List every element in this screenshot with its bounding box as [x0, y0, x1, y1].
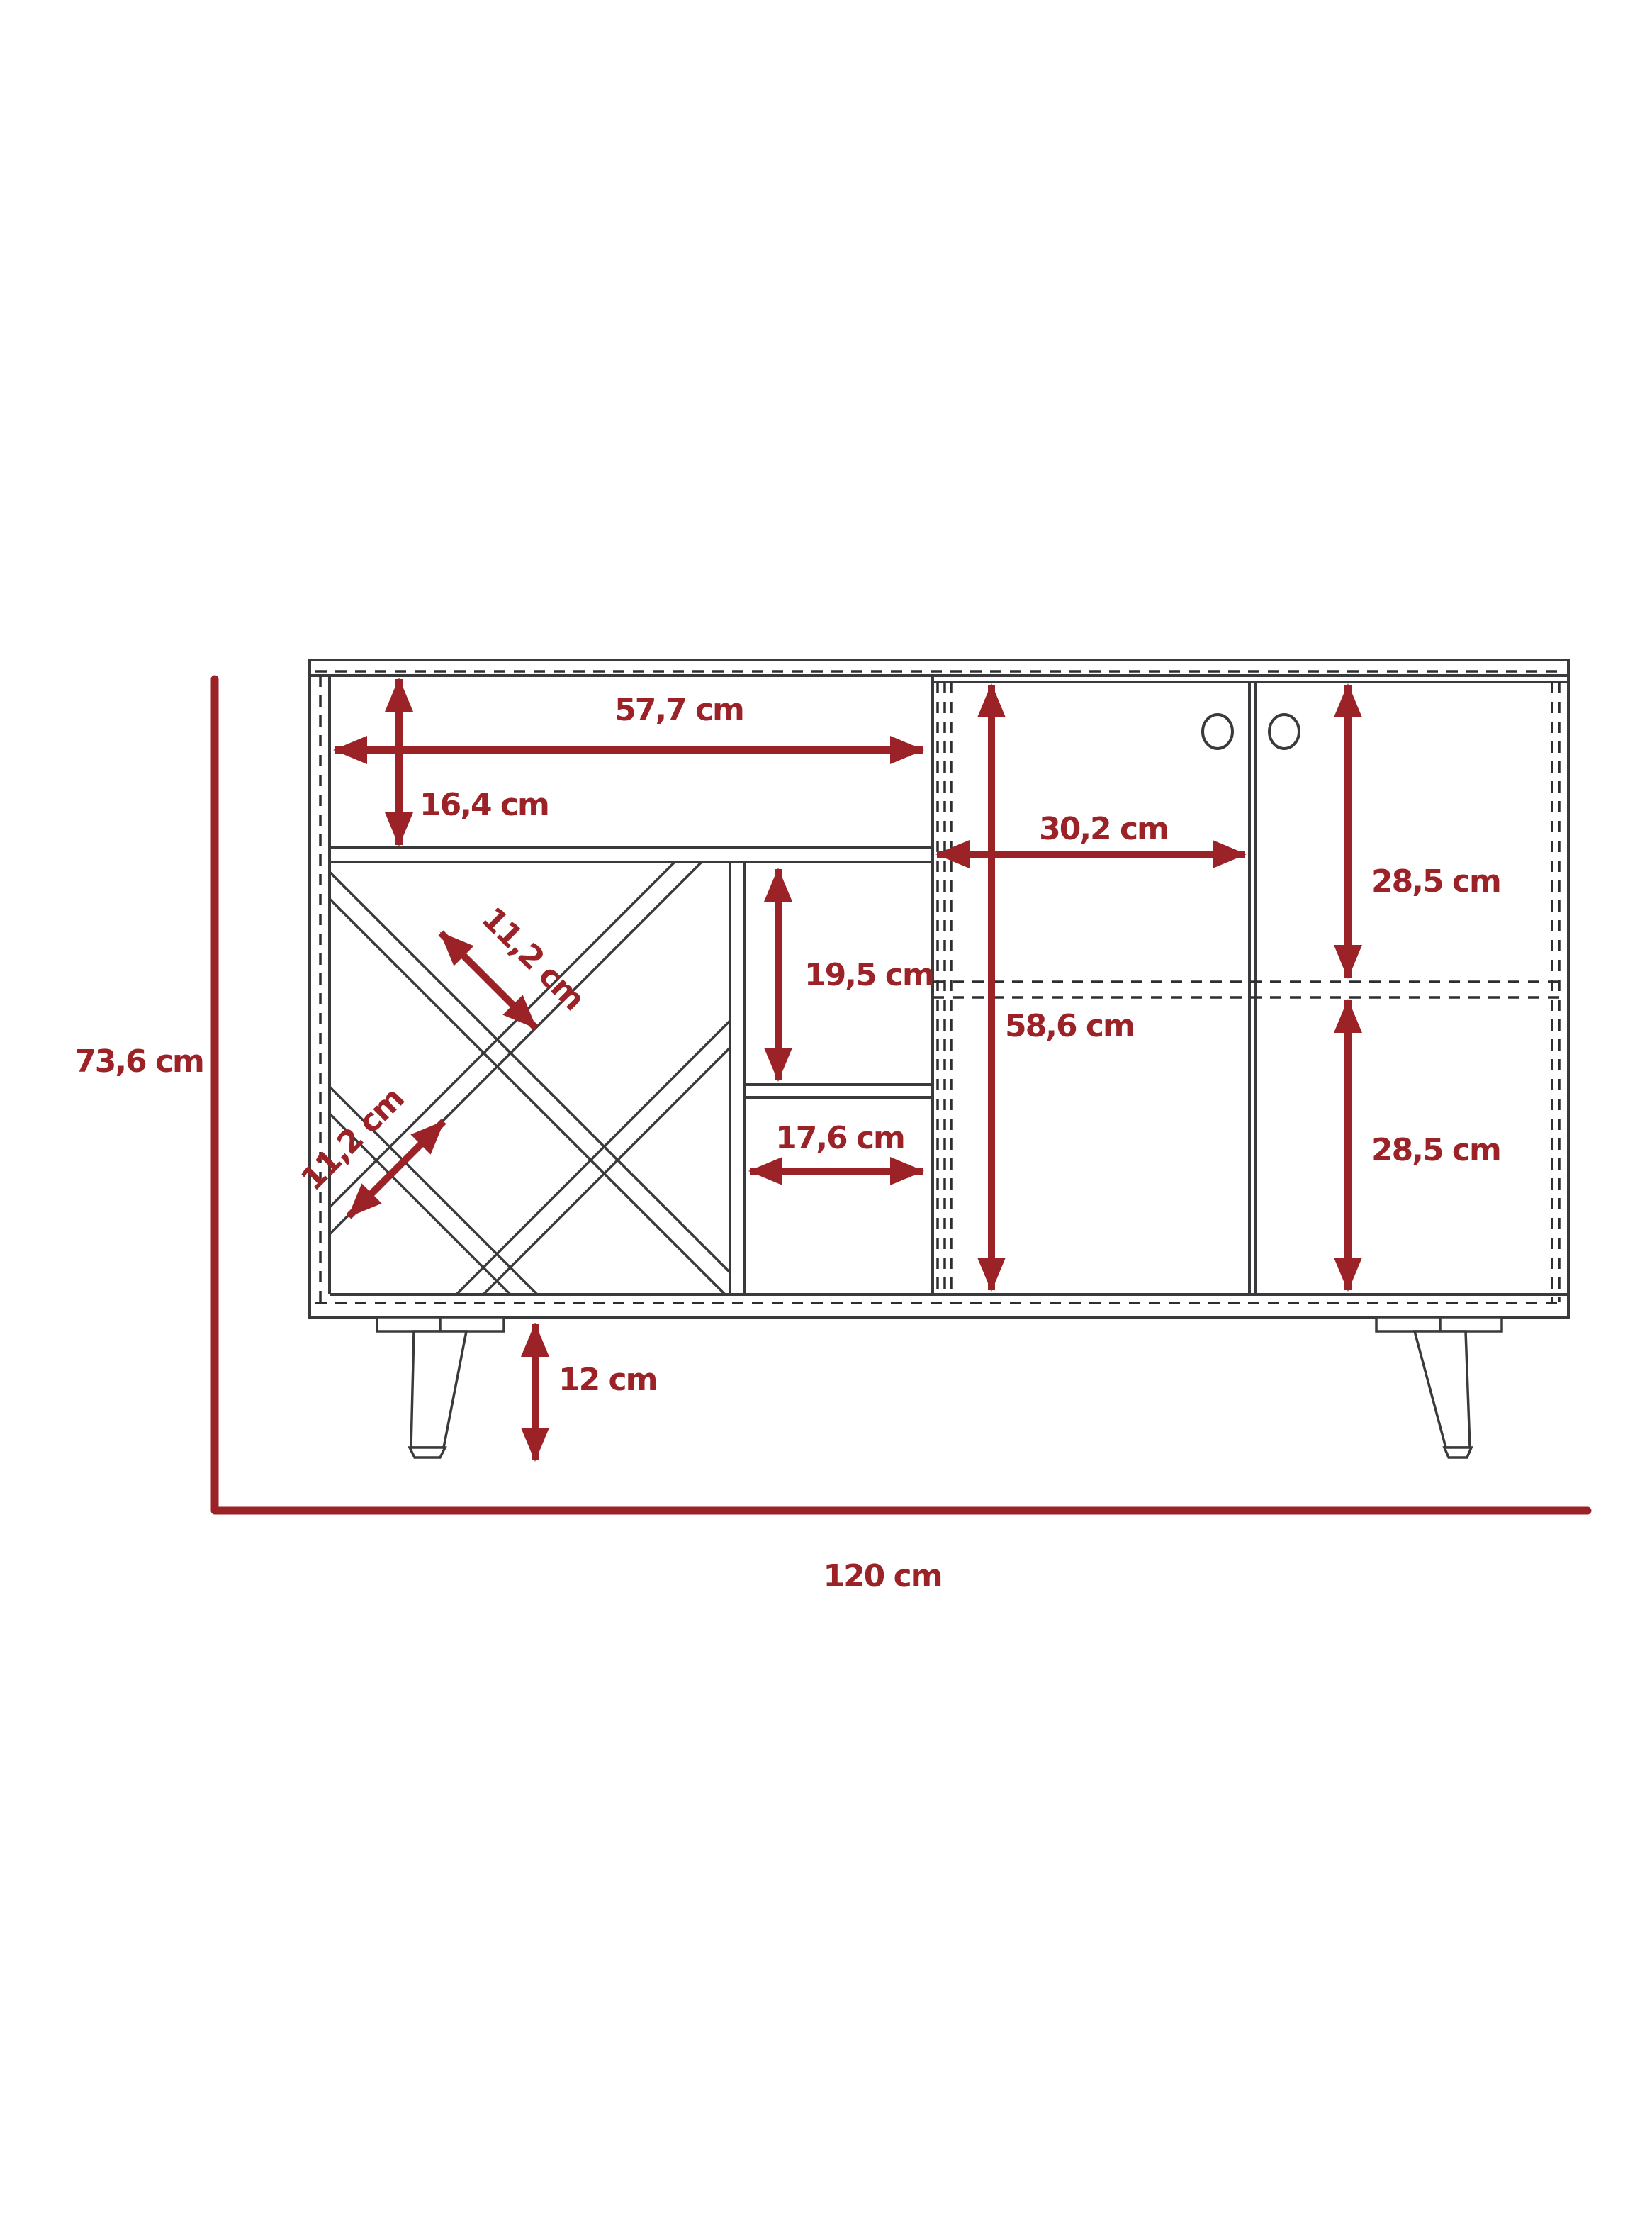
label-overall-height: 73,6 cm	[74, 1043, 203, 1080]
technical-drawing-page: 73,6 cm 120 cm 57,7 cm 16,4 cm 11,2 cm 1…	[0, 0, 1652, 2233]
left-leg	[377, 1317, 504, 1457]
left-door-knob	[1203, 715, 1232, 749]
label-top-shelf-width: 57,7 cm	[614, 692, 743, 728]
label-cabinet-inner-height: 58,6 cm	[1005, 1008, 1134, 1044]
right-door-knob	[1269, 715, 1299, 749]
label-leg-height: 12 cm	[558, 1362, 656, 1398]
label-middle-upper-height: 19,5 cm	[804, 957, 933, 993]
label-overall-width: 120 cm	[823, 1558, 941, 1594]
label-wine-slot-upper: 11,2 cm	[474, 900, 591, 1017]
right-leg	[1376, 1317, 1502, 1457]
dimension-annotations: 73,6 cm 120 cm 57,7 cm 16,4 cm 11,2 cm 1…	[74, 679, 1588, 1594]
label-top-shelf-height: 16,4 cm	[420, 787, 549, 823]
label-door-width: 30,2 cm	[1039, 811, 1168, 847]
cabinet-dimension-diagram: 73,6 cm 120 cm 57,7 cm 16,4 cm 11,2 cm 1…	[0, 0, 1652, 2233]
label-middle-lower-width: 17,6 cm	[775, 1120, 904, 1156]
label-wine-slot-lower: 11,2 cm	[294, 1081, 411, 1198]
label-door-upper-height: 28,5 cm	[1371, 863, 1500, 900]
label-door-lower-height: 28,5 cm	[1371, 1132, 1500, 1168]
